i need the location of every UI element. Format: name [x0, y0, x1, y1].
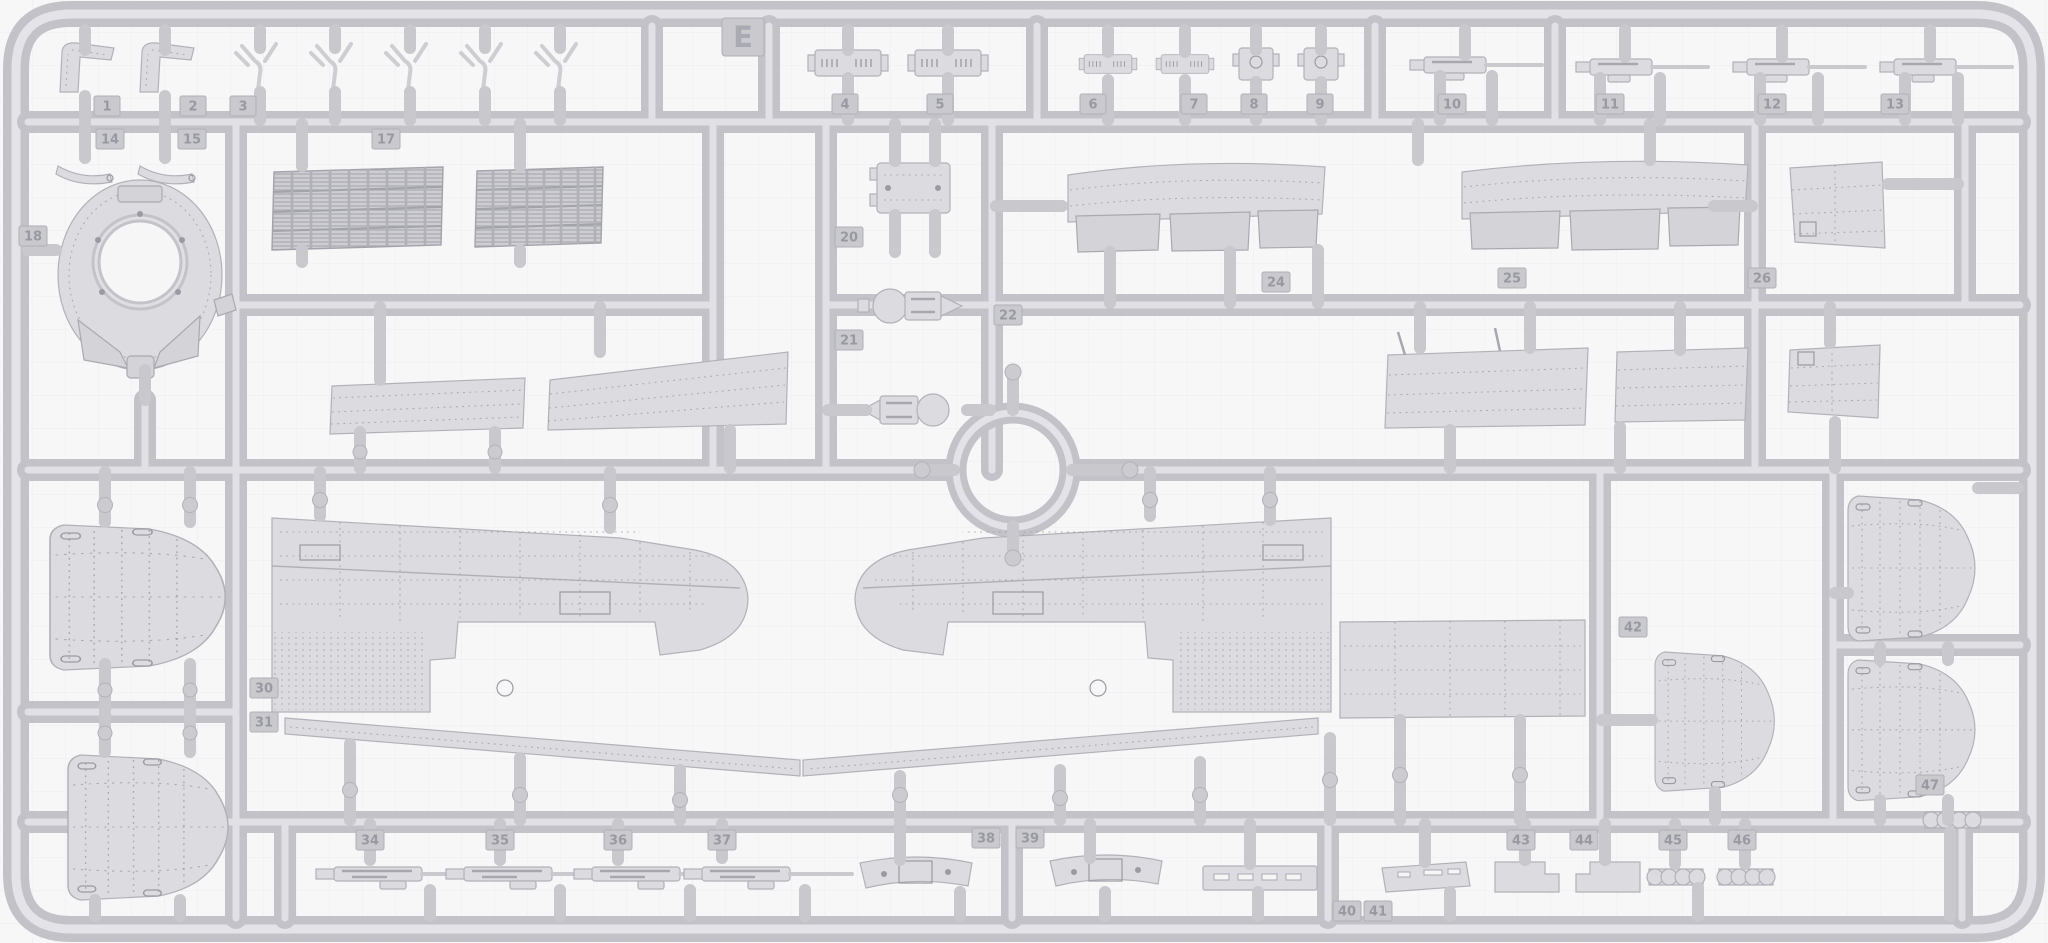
part-tag-11: 11 [1596, 94, 1624, 114]
part-flap-panel [330, 378, 525, 434]
part-tag-9: 9 [1307, 94, 1333, 114]
svg-text:47: 47 [1921, 779, 1939, 794]
svg-text:14: 14 [101, 133, 119, 148]
part-outboard-panel [1790, 162, 1885, 248]
part-tag-39: 39 [1016, 828, 1044, 848]
part-tag-38: 38 [972, 828, 1000, 848]
part-tag-7: 7 [1181, 94, 1207, 114]
part-tag-37: 37 [708, 830, 736, 850]
part-tag-12: 12 [1758, 94, 1786, 114]
svg-text:4: 4 [840, 98, 849, 113]
part-tag-10: 10 [1438, 94, 1466, 114]
svg-text:36: 36 [609, 834, 627, 849]
part-tag-17: 17 [372, 129, 400, 149]
part-tag-18: 18 [19, 226, 47, 246]
svg-text:22: 22 [999, 309, 1017, 324]
svg-text:6: 6 [1088, 98, 1097, 113]
part-tag-13: 13 [1881, 94, 1909, 114]
part-tag-40: 40 [1333, 901, 1361, 921]
sprue-letter-tag: E [722, 18, 764, 56]
part-radiator-grille [272, 167, 443, 250]
svg-text:13: 13 [1886, 98, 1904, 113]
svg-text:8: 8 [1249, 98, 1258, 113]
part-tag-46: 46 [1728, 830, 1756, 850]
part-tag-47: 47 [1916, 775, 1944, 795]
svg-text:11: 11 [1601, 98, 1619, 113]
svg-text:45: 45 [1664, 834, 1682, 849]
part-flap-panel [1615, 348, 1748, 422]
part-fairing-39 [1050, 855, 1162, 886]
part-tag-2: 2 [180, 96, 206, 116]
svg-text:38: 38 [977, 832, 995, 847]
part-tag-35: 35 [486, 830, 514, 850]
part-outboard-panel [1788, 345, 1880, 418]
part-center-section-panel [1340, 620, 1585, 718]
part-fairing-38 [860, 857, 972, 888]
part-tag-4: 4 [832, 94, 858, 114]
part-tag-44: 44 [1570, 830, 1598, 850]
part-tag-30: 30 [250, 678, 278, 698]
svg-text:12: 12 [1763, 98, 1781, 113]
part-tag-21: 21 [835, 330, 863, 350]
part-tag-36: 36 [604, 830, 632, 850]
svg-text:35: 35 [491, 834, 509, 849]
svg-text:25: 25 [1503, 272, 1521, 287]
part-tag-15: 15 [178, 129, 206, 149]
sprue-photo: E 1 2 3 4 5 6 7 8 9 10 11 12 13 14 15 17… [0, 0, 2048, 943]
svg-text:3: 3 [238, 100, 247, 115]
part-tag-42: 42 [1619, 617, 1647, 637]
svg-text:43: 43 [1512, 834, 1530, 849]
part-gun-mount-box [870, 163, 950, 213]
part-slotted-flap [1068, 163, 1325, 252]
svg-text:39: 39 [1021, 832, 1039, 847]
svg-text:20: 20 [840, 231, 858, 246]
part-tag-14: 14 [96, 129, 124, 149]
part-tag-24: 24 [1262, 272, 1290, 292]
svg-text:31: 31 [255, 716, 273, 731]
svg-text:18: 18 [24, 230, 42, 245]
svg-text:26: 26 [1753, 272, 1771, 287]
svg-text:24: 24 [1267, 276, 1285, 291]
svg-text:17: 17 [377, 133, 395, 148]
part-tag-6: 6 [1080, 94, 1106, 114]
part-tag-31: 31 [250, 712, 278, 732]
part-radiator-grille [475, 167, 603, 247]
svg-text:7: 7 [1189, 98, 1198, 113]
svg-text:9: 9 [1315, 98, 1324, 113]
svg-text:21: 21 [840, 334, 858, 349]
svg-text:37: 37 [713, 834, 731, 849]
part-tag-34: 34 [356, 830, 384, 850]
svg-text:44: 44 [1575, 834, 1593, 849]
svg-text:2: 2 [188, 100, 197, 115]
sprue-letter: E [733, 20, 753, 54]
part-tag-45: 45 [1659, 830, 1687, 850]
part-tag-41: 41 [1364, 901, 1392, 921]
part-tag-8: 8 [1241, 94, 1267, 114]
svg-text:10: 10 [1443, 98, 1461, 113]
svg-text:40: 40 [1338, 905, 1356, 920]
part-tag-20: 20 [835, 227, 863, 247]
svg-text:34: 34 [361, 834, 379, 849]
svg-text:15: 15 [183, 133, 201, 148]
part-tag-1: 1 [94, 96, 120, 116]
svg-text:41: 41 [1369, 905, 1387, 920]
part-disc-strip-46 [1717, 869, 1775, 885]
svg-text:1: 1 [102, 100, 111, 115]
sprue-scene: E 1 2 3 4 5 6 7 8 9 10 11 12 13 14 15 17… [0, 0, 2048, 943]
part-tag-5: 5 [927, 94, 953, 114]
svg-text:46: 46 [1733, 834, 1751, 849]
part-tag-43: 43 [1507, 830, 1535, 850]
part-tag-3: 3 [230, 96, 256, 116]
part-tag-26: 26 [1748, 268, 1776, 288]
svg-text:42: 42 [1624, 621, 1642, 636]
part-slotted-flap [1462, 161, 1748, 250]
part-tag-25: 25 [1498, 268, 1526, 288]
part-tag-22: 22 [994, 305, 1022, 325]
svg-text:30: 30 [255, 682, 273, 697]
svg-text:5: 5 [935, 98, 944, 113]
